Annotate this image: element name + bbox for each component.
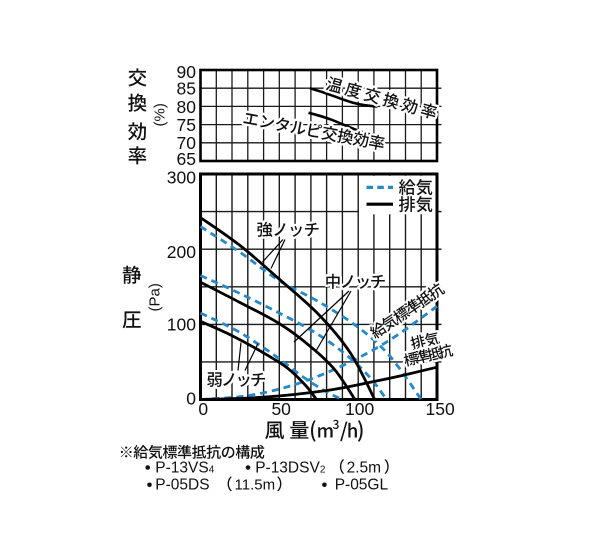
svg-text:P-13VS4: P-13VS4 [155, 459, 214, 476]
svg-text:0: 0 [198, 399, 208, 419]
svg-text:2.5m: 2.5m [347, 459, 381, 476]
svg-text:11.5m: 11.5m [235, 477, 276, 494]
svg-text:150: 150 [425, 399, 454, 419]
svg-text:100: 100 [167, 315, 196, 335]
svg-text:P-05GL: P-05GL [335, 477, 389, 494]
svg-text:200: 200 [167, 242, 196, 262]
svg-text:100: 100 [345, 399, 374, 419]
svg-text:0: 0 [186, 388, 196, 408]
svg-text:P-13DSV2: P-13DSV2 [255, 459, 326, 476]
svg-text:85: 85 [177, 79, 196, 99]
svg-text:50: 50 [271, 399, 291, 419]
svg-text:300: 300 [167, 168, 196, 188]
svg-text:(%): (%) [152, 103, 169, 126]
svg-text:(Pa): (Pa) [147, 283, 164, 311]
svg-text:75: 75 [177, 115, 196, 135]
svg-text:P-05DS: P-05DS [155, 477, 209, 494]
svg-text:80: 80 [177, 97, 197, 117]
svg-text:65: 65 [177, 149, 196, 169]
